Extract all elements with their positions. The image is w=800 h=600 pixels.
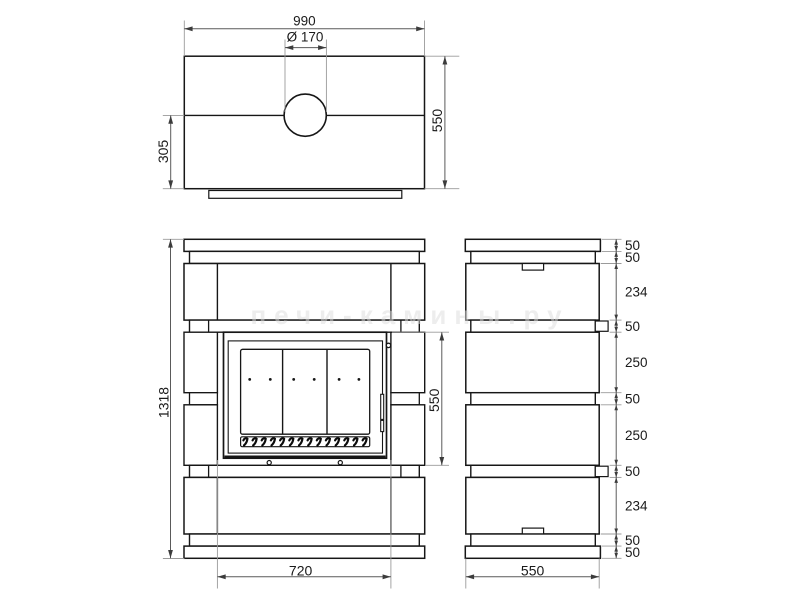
svg-text:990: 990 <box>293 13 316 28</box>
svg-text:250: 250 <box>625 355 648 370</box>
svg-text:печи-камины.ру: печи-камины.ру <box>250 300 569 330</box>
svg-text:50: 50 <box>625 391 640 406</box>
svg-text:50: 50 <box>625 545 640 560</box>
svg-text:50: 50 <box>625 319 640 334</box>
svg-text:550: 550 <box>426 388 442 412</box>
svg-text:305: 305 <box>155 140 171 164</box>
svg-text:50: 50 <box>625 464 640 479</box>
svg-text:720: 720 <box>289 562 313 578</box>
svg-text:550: 550 <box>521 562 545 578</box>
svg-text:234: 234 <box>625 285 648 300</box>
svg-text:250: 250 <box>625 428 648 443</box>
svg-text:50: 50 <box>625 250 640 265</box>
svg-text:234: 234 <box>625 498 648 513</box>
svg-text:550: 550 <box>429 109 445 133</box>
svg-text:Ø 170: Ø 170 <box>287 29 324 44</box>
svg-text:1318: 1318 <box>156 387 172 418</box>
